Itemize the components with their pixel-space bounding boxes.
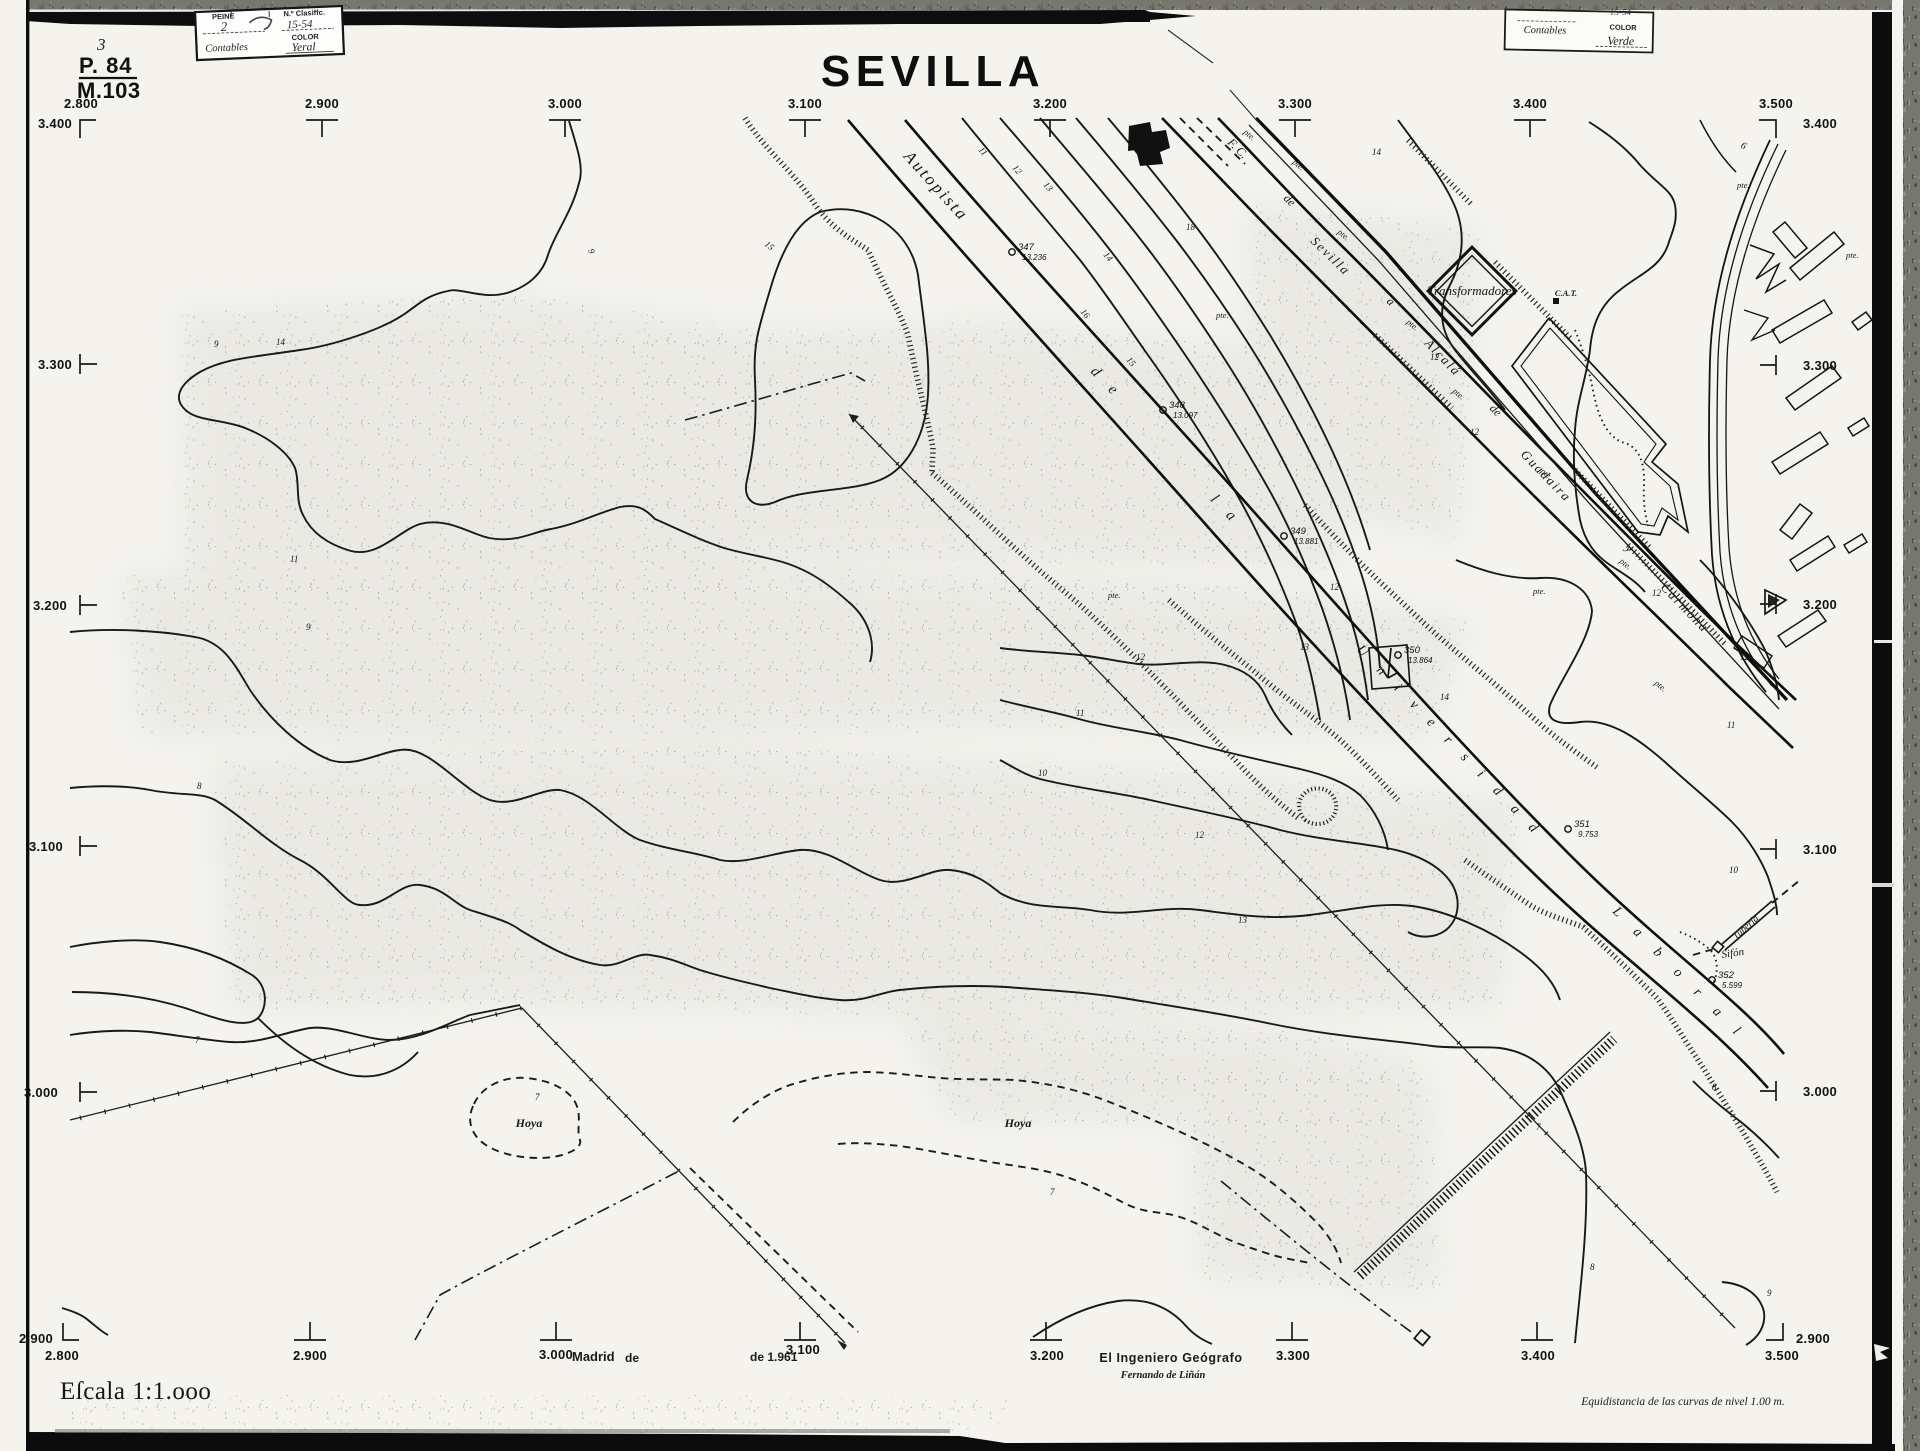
svg-text:3.500: 3.500 [1759, 96, 1793, 111]
svg-text:pte.: pte. [1736, 180, 1750, 190]
svg-text:Tubería: Tubería [1731, 913, 1761, 942]
svg-text:7: 7 [1050, 1187, 1055, 1197]
svg-text:3.400: 3.400 [1521, 1348, 1555, 1363]
svg-text:Transformadores: Transformadores [1427, 283, 1516, 298]
svg-text:3.200: 3.200 [1030, 1348, 1064, 1363]
svg-text:de: de [625, 1351, 639, 1365]
svg-text:13: 13 [1041, 180, 1055, 194]
svg-text:7: 7 [195, 1035, 200, 1045]
svg-text:3.000: 3.000 [539, 1347, 573, 1362]
svg-text:2.900: 2.900 [19, 1331, 53, 1346]
svg-text:11: 11 [976, 145, 989, 158]
svg-text:Verde: Verde [1607, 34, 1635, 49]
svg-text:pte.: pte. [1845, 250, 1859, 260]
svg-text:348: 348 [1169, 400, 1186, 411]
svg-text:8: 8 [1712, 1082, 1717, 1092]
svg-text:2: 2 [220, 19, 228, 34]
svg-text:12: 12 [1136, 652, 1146, 662]
svg-text:10: 10 [1729, 865, 1739, 875]
svg-text:11: 11 [290, 554, 298, 564]
svg-text:9.753: 9.753 [1578, 830, 1599, 839]
svg-text:11: 11 [1727, 720, 1735, 730]
svg-text:6: 6 [1739, 140, 1749, 152]
svg-text:3.000: 3.000 [548, 96, 582, 111]
svg-text:5.599: 5.599 [1722, 981, 1743, 990]
svg-text:pte.: pte. [1107, 590, 1121, 600]
svg-text:pte.: pte. [1215, 310, 1229, 320]
svg-text:3.200: 3.200 [1803, 597, 1837, 612]
svg-text:13: 13 [1300, 642, 1310, 652]
svg-text:11: 11 [1076, 708, 1084, 718]
svg-text:Fernando de Liñán: Fernando de Liñán [1120, 1370, 1206, 1381]
svg-text:13.864: 13.864 [1408, 656, 1433, 665]
svg-text:14: 14 [1372, 147, 1382, 157]
svg-text:3.300: 3.300 [1803, 358, 1837, 373]
svg-text:12: 12 [1330, 582, 1340, 592]
svg-text:14: 14 [1101, 250, 1115, 264]
svg-text:2.900: 2.900 [1796, 1331, 1830, 1346]
svg-text:pte.: pte. [1532, 586, 1546, 596]
svg-text:pte.: pte. [1652, 677, 1669, 693]
svg-text:351: 351 [1574, 819, 1590, 830]
svg-text:349: 349 [1290, 526, 1307, 537]
svg-text:12: 12 [1740, 652, 1750, 662]
svg-text:Contables: Contables [1524, 25, 1567, 37]
svg-text:12: 12 [1652, 588, 1662, 598]
svg-text:pte.: pte. [1241, 126, 1258, 142]
svg-text:2.900: 2.900 [293, 1348, 327, 1363]
svg-text:3.100: 3.100 [1803, 842, 1837, 857]
svg-text:18: 18 [1186, 222, 1196, 232]
svg-text:3.500: 3.500 [1765, 1348, 1799, 1363]
svg-text:15: 15 [763, 239, 777, 253]
svg-text:12: 12 [1470, 427, 1480, 437]
svg-text:3.100: 3.100 [29, 839, 63, 854]
svg-text:3.300: 3.300 [1276, 1348, 1310, 1363]
svg-text:13: 13 [1238, 915, 1248, 925]
svg-text:3.000: 3.000 [1803, 1084, 1837, 1099]
svg-text:13.236: 13.236 [1022, 253, 1047, 262]
svg-text:3.200: 3.200 [1033, 96, 1067, 111]
svg-text:3.400: 3.400 [1513, 96, 1547, 111]
svg-text:Eſcala 1:1.ooo: Eſcala 1:1.ooo [60, 1378, 211, 1405]
svg-text:de 1.961: de 1.961 [750, 1350, 798, 1364]
svg-text:12: 12 [1010, 163, 1024, 177]
svg-text:COLOR: COLOR [1609, 23, 1637, 33]
svg-text:2.900: 2.900 [305, 96, 339, 111]
svg-text:N.º Clasiffc.: N.º Clasiffc. [283, 8, 325, 19]
svg-text:347: 347 [1018, 242, 1035, 253]
svg-text:Hoya: Hoya [515, 1116, 543, 1130]
svg-text:8: 8 [197, 781, 202, 791]
svg-text:10: 10 [1038, 768, 1048, 778]
svg-text:El Ingeniero Geógrafo: El Ingeniero Geógrafo [1099, 1351, 1242, 1365]
svg-text:352: 352 [1718, 970, 1735, 981]
svg-text:9: 9 [306, 622, 311, 632]
svg-text:8: 8 [1590, 1262, 1595, 1272]
svg-text:3.300: 3.300 [1278, 96, 1312, 111]
svg-text:Madrid: Madrid [572, 1349, 615, 1364]
svg-text:Hoya: Hoya [1004, 1116, 1032, 1130]
svg-text:P. 84: P. 84 [79, 53, 133, 78]
svg-text:SEVILLA: SEVILLA [821, 47, 1045, 96]
svg-text:3: 3 [96, 35, 106, 54]
svg-text:7: 7 [535, 1092, 540, 1102]
svg-text:3.400: 3.400 [38, 116, 72, 131]
svg-text:13.881: 13.881 [1294, 537, 1318, 546]
svg-text:3.200: 3.200 [33, 598, 67, 613]
svg-text:15-54: 15-54 [1610, 7, 1632, 17]
svg-text:14: 14 [1440, 692, 1450, 702]
svg-text:3.300: 3.300 [38, 357, 72, 372]
svg-text:9: 9 [1767, 1288, 1772, 1298]
svg-text:M.103: M.103 [77, 78, 141, 103]
svg-text:3.100: 3.100 [788, 96, 822, 111]
svg-text:Equidistancia de las curvas de: Equidistancia de las curvas de nivel 1.0… [1580, 1396, 1784, 1408]
svg-text:13.097: 13.097 [1173, 411, 1198, 420]
svg-text:pte.: pte. [1617, 555, 1634, 571]
svg-text:12: 12 [1430, 352, 1440, 362]
svg-text:2.800: 2.800 [45, 1348, 79, 1363]
svg-text:Contables: Contables [205, 42, 248, 55]
svg-text:14: 14 [276, 337, 286, 347]
svg-text:9: 9 [586, 247, 597, 255]
svg-text:Sifón: Sifón [1721, 946, 1746, 961]
svg-text:15-54: 15-54 [287, 18, 314, 31]
svg-text:12: 12 [1195, 830, 1205, 840]
svg-text:C.A.T.: C.A.T. [1555, 288, 1577, 298]
svg-text:3.400: 3.400 [1803, 116, 1837, 131]
svg-text:7: 7 [1536, 1122, 1541, 1132]
svg-text:9: 9 [214, 339, 219, 349]
